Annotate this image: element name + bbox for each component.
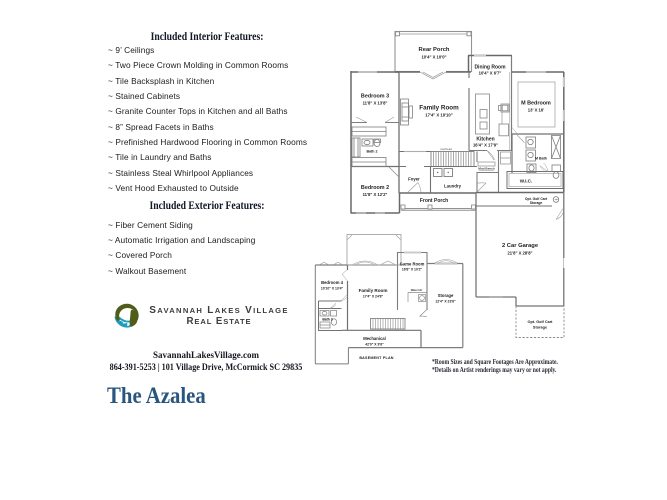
svg-text:17'4" X 24'8": 17'4" X 24'8" <box>363 295 384 299</box>
svg-text:Water Htr: Water Htr <box>411 288 423 292</box>
svg-text:Laundry: Laundry <box>444 184 462 189</box>
svg-text:10'4" X 10'0": 10'4" X 10'0" <box>421 55 446 60</box>
svg-text:10'10" X 13'4": 10'10" X 13'4" <box>321 287 344 291</box>
svg-text:11'8" X 13'8": 11'8" X 13'8" <box>363 101 388 106</box>
svg-text:BASEMENT PLAN: BASEMENT PLAN <box>359 356 393 360</box>
svg-text:Rear Porch: Rear Porch <box>419 47 450 53</box>
svg-text:Storage: Storage <box>533 326 547 330</box>
svg-text:Mechanical: Mechanical <box>363 336 386 341</box>
svg-text:Bedroom 2: Bedroom 2 <box>361 185 389 191</box>
svg-text:Front Porch: Front Porch <box>420 198 448 204</box>
svg-text:12'4" X 23'8": 12'4" X 23'8" <box>435 300 456 304</box>
svg-text:W.I.C.: W.I.C. <box>520 179 533 184</box>
svg-text:overhead: overhead <box>440 147 452 151</box>
svg-text:Opt. Golf Cart: Opt. Golf Cart <box>528 320 554 324</box>
svg-text:2 Car Garage: 2 Car Garage <box>502 243 539 249</box>
svg-text:Bath 3: Bath 3 <box>322 318 332 322</box>
svg-text:16'8" X 10'2": 16'8" X 10'2" <box>402 268 423 272</box>
svg-text:10'4" X 6'7": 10'4" X 6'7" <box>479 71 502 76</box>
svg-text:Storage: Storage <box>438 293 454 298</box>
svg-text:17'4" X 19'10": 17'4" X 19'10" <box>425 113 452 118</box>
svg-text:M Bedroom: M Bedroom <box>521 101 551 107</box>
svg-text:Bath 2: Bath 2 <box>367 150 378 154</box>
svg-text:Bedroom 4: Bedroom 4 <box>321 280 344 285</box>
svg-text:Family Room: Family Room <box>419 105 459 112</box>
svg-text:Family Room: Family Room <box>359 288 388 293</box>
svg-text:13' X 16': 13' X 16' <box>528 108 544 113</box>
svg-text:Mud Bench: Mud Bench <box>478 167 494 171</box>
svg-text:21'8" X 28'8": 21'8" X 28'8" <box>507 251 532 256</box>
svg-text:11'8" X 12'2": 11'8" X 12'2" <box>363 192 388 197</box>
svg-text:Bedroom 3: Bedroom 3 <box>361 94 389 100</box>
svg-text:Game Room: Game Room <box>400 262 425 267</box>
svg-text:Storage: Storage <box>530 201 543 205</box>
svg-text:M Bath: M Bath <box>535 157 547 161</box>
svg-text:42'0" X 9'8": 42'0" X 9'8" <box>365 343 384 347</box>
svg-text:Foyer: Foyer <box>408 177 420 182</box>
svg-text:16'4" X 17'9": 16'4" X 17'9" <box>473 143 498 148</box>
